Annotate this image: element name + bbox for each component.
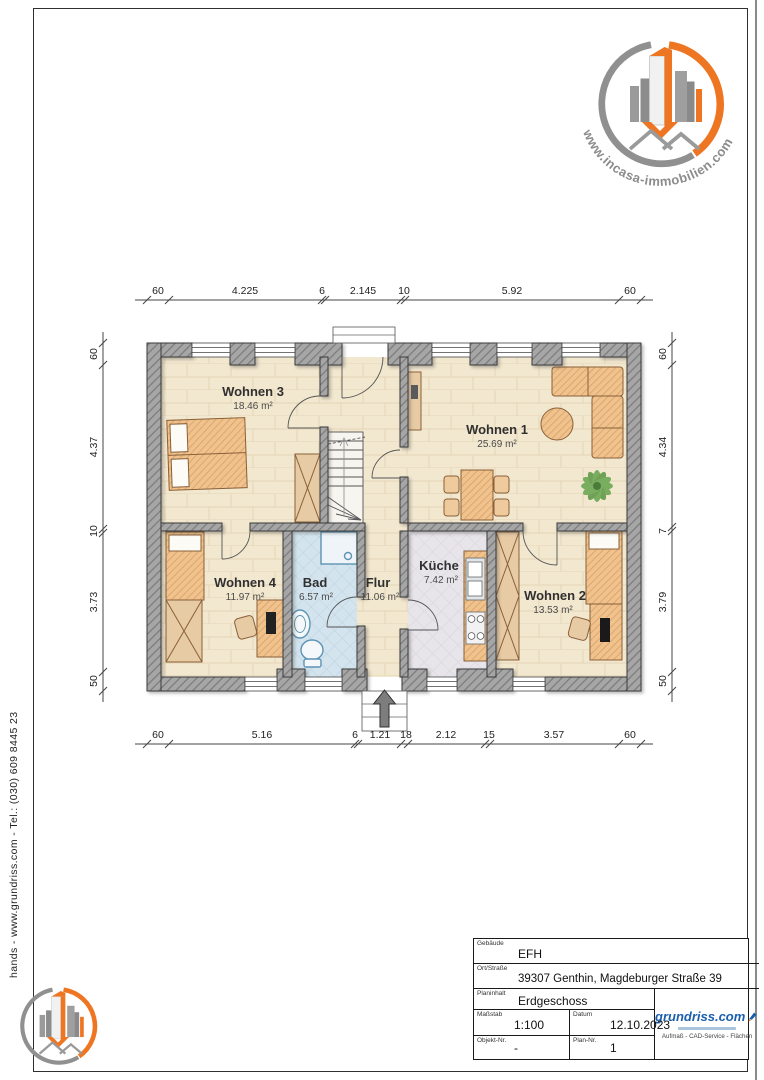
field-label: Plan-Nr. (573, 1037, 596, 1044)
window (432, 343, 470, 357)
svg-text:4.34: 4.34 (657, 437, 669, 458)
room-area: 11.06 m² (361, 592, 400, 603)
pen-icon (746, 1010, 759, 1023)
svg-text:7: 7 (657, 528, 669, 534)
svg-text:4.225: 4.225 (232, 285, 258, 297)
round-table (541, 408, 573, 440)
shower (321, 532, 357, 564)
wardrobe (166, 600, 202, 662)
window (513, 677, 545, 691)
svg-text:2.145: 2.145 (350, 285, 376, 297)
room-label-bad: Bad (303, 575, 328, 590)
room-label-wohnen4: Wohnen 4 (214, 575, 277, 590)
svg-text:2.12: 2.12 (436, 729, 457, 741)
window (245, 677, 277, 691)
kitchen-counter (464, 551, 487, 661)
svg-text:3.79: 3.79 (657, 592, 669, 613)
room-label-wohnen3: Wohnen 3 (222, 384, 284, 399)
single-bed (586, 530, 622, 604)
grundriss-logo-box: grundriss.com Aufmaß - CAD-Service - Flä… (655, 989, 759, 1059)
field-label: Gebäude (477, 940, 504, 947)
floors (161, 357, 627, 677)
svg-text:60: 60 (624, 285, 636, 297)
floor-plan-sheet: www.incasa-immobilien.com hands - www.gr… (0, 0, 764, 1080)
svg-text:6: 6 (319, 285, 325, 297)
grundriss-tagline: Aufmaß - CAD-Service - Flächen (662, 1033, 752, 1040)
field-value: 39307 Genthin, Magdeburger Straße 39 (474, 964, 759, 985)
svg-text:60: 60 (88, 348, 100, 360)
svg-text:10: 10 (398, 285, 410, 297)
room-area: 18.46 m² (233, 401, 273, 412)
svg-text:5.16: 5.16 (252, 729, 273, 741)
title-block: Gebäude EFH Ort/Straße 39307 Genthin, Ma… (473, 938, 749, 1060)
title-block-objekt: Objekt-Nr. - (474, 1036, 570, 1059)
room-label-wohnen2: Wohnen 2 (524, 588, 586, 603)
window (497, 343, 532, 357)
kitchen-sink (468, 562, 482, 577)
grundriss-logo: grundriss.com (655, 1009, 759, 1024)
room-area: 7.42 m² (424, 575, 459, 586)
wardrobe (496, 532, 519, 660)
window (305, 677, 342, 691)
floor-plan-drawing: 60 4.225 6 2.145 10 5.92 60 60 5.16 6 1.… (0, 0, 764, 1080)
svg-text:3.57: 3.57 (544, 729, 565, 741)
toilet (301, 640, 323, 660)
window (192, 343, 230, 357)
room-area: 25.69 m² (477, 439, 517, 450)
title-block-datum: Datum 12.10.2023 (570, 1010, 655, 1036)
room-area: 6.57 m² (299, 592, 334, 603)
room-area: 11.97 m² (226, 592, 265, 603)
staircase (323, 432, 365, 523)
field-label: Maßstab (477, 1011, 502, 1018)
svg-text:60: 60 (657, 348, 669, 360)
svg-text:60: 60 (152, 285, 164, 297)
double-bed (167, 418, 247, 491)
svg-text:3.73: 3.73 (88, 592, 100, 613)
room-label-flur: Flur (366, 575, 391, 590)
title-block-gebaeude: Gebäude EFH (474, 939, 759, 964)
room-area: 13.53 m² (533, 605, 573, 616)
sink (290, 610, 310, 638)
svg-text:5.92: 5.92 (502, 285, 523, 297)
field-label: Ort/Straße (477, 965, 507, 972)
wardrobe (295, 454, 320, 522)
svg-text:50: 50 (88, 675, 100, 687)
single-bed (166, 532, 204, 600)
svg-text:50: 50 (657, 675, 669, 687)
svg-text:60: 60 (624, 729, 636, 741)
title-block-plan-nr: Plan-Nr. 1 (570, 1036, 655, 1059)
room-label-wohnen1: Wohnen 1 (466, 422, 528, 437)
grundriss-microtext-line (678, 1027, 736, 1030)
svg-text:18: 18 (400, 729, 412, 741)
field-label: Planinhalt (477, 990, 506, 997)
sideboard (408, 372, 421, 430)
room-label-kueche: Küche (419, 558, 459, 573)
svg-text:60: 60 (152, 729, 164, 741)
svg-text:15: 15 (483, 729, 495, 741)
title-block-ort: Ort/Straße 39307 Genthin, Magdeburger St… (474, 964, 759, 989)
field-value: EFH (474, 939, 759, 961)
window (255, 343, 295, 357)
svg-text:1.21: 1.21 (370, 729, 391, 741)
window (427, 677, 457, 691)
svg-text:10: 10 (88, 525, 100, 537)
window (562, 343, 600, 357)
field-label: Objekt-Nr. (477, 1037, 506, 1044)
field-label: Datum (573, 1011, 592, 1018)
svg-text:6: 6 (352, 729, 358, 741)
svg-text:4.37: 4.37 (88, 437, 100, 458)
title-block-planinhalt: Planinhalt Erdgeschoss (474, 989, 655, 1010)
title-block-massstab: Maßstab 1:100 (474, 1010, 570, 1036)
